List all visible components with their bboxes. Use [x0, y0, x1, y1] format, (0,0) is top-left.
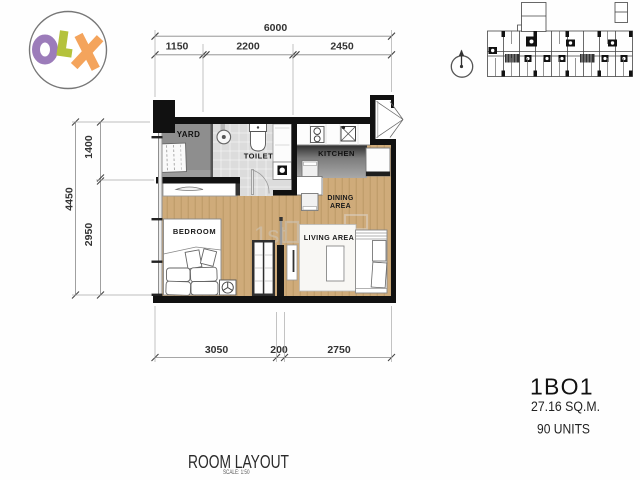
svg-text:2200: 2200 [236, 41, 260, 53]
svg-text:1150: 1150 [166, 41, 189, 53]
svg-text:LIVING AREA: LIVING AREA [304, 233, 354, 242]
svg-text:4450: 4450 [64, 187, 76, 211]
svg-text:KITCHEN: KITCHEN [318, 149, 355, 158]
svg-text:90 UNITS: 90 UNITS [537, 422, 590, 437]
svg-text:6000: 6000 [264, 22, 288, 34]
svg-text:YARD: YARD [177, 130, 201, 139]
svg-text:27.16 SQ.M.: 27.16 SQ.M. [531, 399, 600, 414]
svg-text:DINING: DINING [327, 195, 354, 202]
svg-text:2950: 2950 [83, 223, 95, 247]
svg-text:1BO1: 1BO1 [530, 374, 593, 400]
svg-text:SCALE: 1:50: SCALE: 1:50 [223, 469, 250, 476]
svg-text:TOILET: TOILET [244, 152, 274, 161]
svg-text:1400: 1400 [83, 135, 95, 159]
svg-text:2750: 2750 [327, 344, 351, 356]
svg-text:AREA: AREA [330, 203, 351, 210]
svg-text:BEDROOM: BEDROOM [173, 227, 216, 236]
svg-text:3050: 3050 [205, 344, 229, 356]
svg-text:2450: 2450 [330, 41, 354, 53]
